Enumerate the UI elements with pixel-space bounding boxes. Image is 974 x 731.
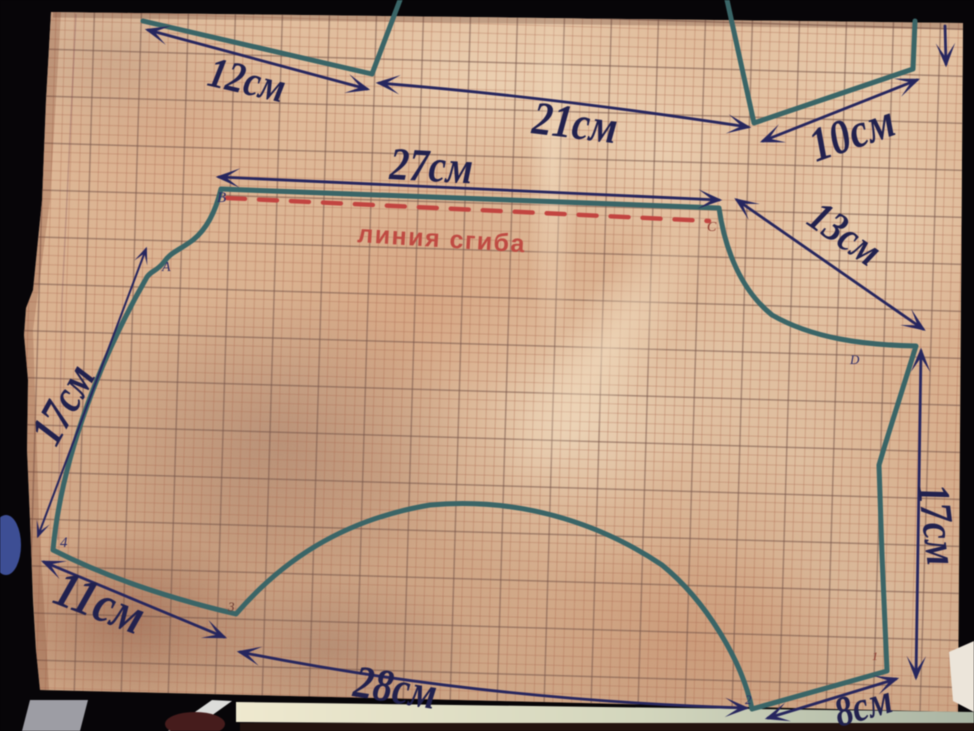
svg-text:C: C bbox=[707, 220, 717, 235]
svg-text:1: 1 bbox=[872, 649, 878, 663]
svg-text:B: B bbox=[217, 190, 226, 206]
svg-text:3: 3 bbox=[227, 599, 235, 614]
svg-text:4: 4 bbox=[60, 535, 68, 551]
svg-text:D: D bbox=[849, 352, 860, 367]
svg-text:27см: 27см bbox=[388, 139, 475, 194]
svg-text:A: A bbox=[161, 260, 171, 275]
svg-text:2: 2 bbox=[745, 692, 752, 707]
svg-text:17см: 17см bbox=[907, 481, 966, 568]
svg-text:21см: 21см bbox=[529, 92, 621, 154]
